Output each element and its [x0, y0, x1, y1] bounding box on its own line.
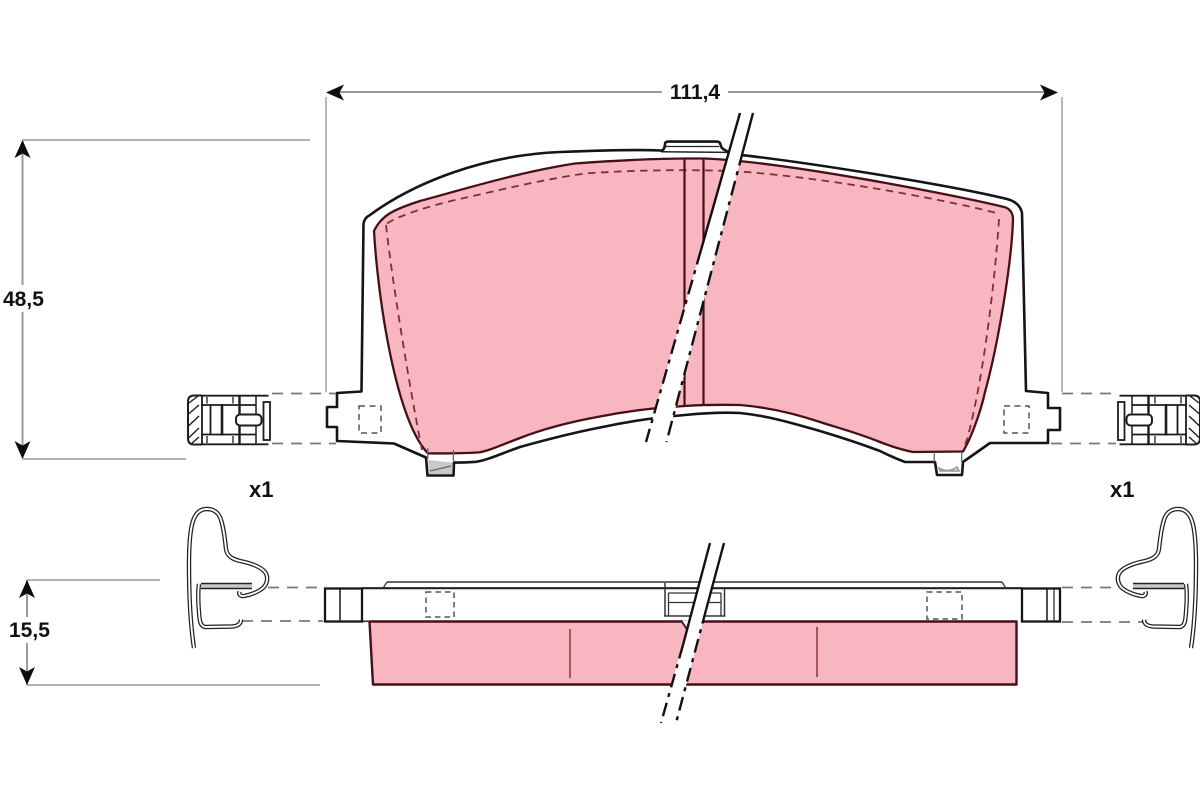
svg-text:48,5: 48,5 — [3, 288, 44, 311]
svg-text:15,5: 15,5 — [9, 619, 50, 642]
svg-text:x1: x1 — [249, 477, 273, 502]
svg-text:111,4: 111,4 — [670, 81, 721, 104]
svg-text:x1: x1 — [1110, 477, 1134, 502]
